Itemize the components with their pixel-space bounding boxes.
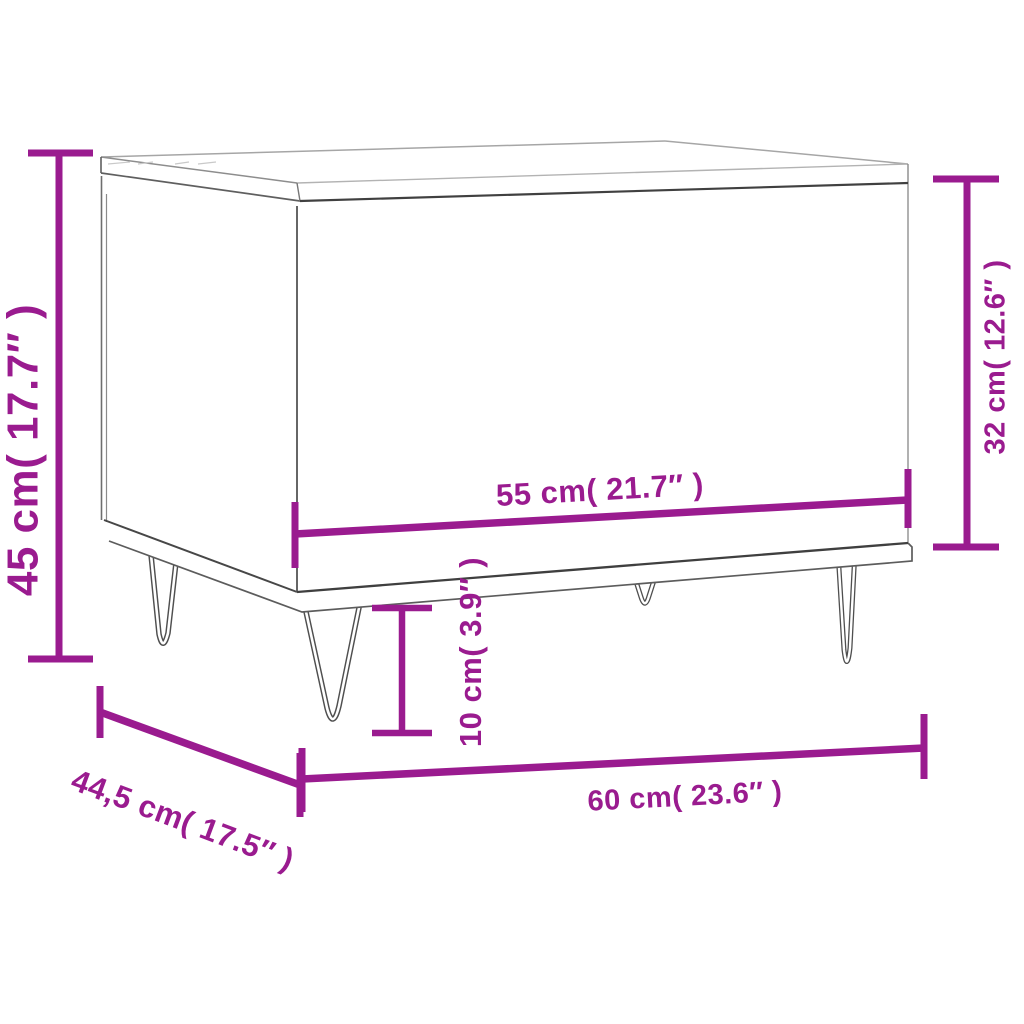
dimension-diagram-page: 45 cm( 17.7″ ) 32 cm( 12.6″ ) 55 cm( 21.… <box>0 0 1024 1024</box>
dimension-label: 32 cm( 12.6″ ) <box>980 260 1012 455</box>
dimension-label: 44,5 cm( 17.5″ ) <box>67 762 299 877</box>
cabinet-box <box>102 176 909 592</box>
hairpin-leg-front-left <box>303 598 361 719</box>
dimension-height-45cm: 45 cm( 17.7″ ) <box>0 153 93 659</box>
dimension-width-60cm: 60 cm( 23.6″ ) <box>302 714 924 818</box>
dimension-depth-44-5cm: 44,5 cm( 17.5″ ) <box>67 686 300 877</box>
dimension-label: 45 cm( 17.7″ ) <box>0 304 48 596</box>
dimension-label: 10 cm( 3.9″ ) <box>453 557 488 747</box>
dimension-side-height-32cm: 32 cm( 12.6″ ) <box>933 179 1012 547</box>
dimension-label: 60 cm( 23.6″ ) <box>587 776 783 818</box>
dimension-line <box>302 748 924 779</box>
dimension-diagram-canvas: 45 cm( 17.7″ ) 32 cm( 12.6″ ) 55 cm( 21.… <box>0 0 1024 1024</box>
dimension-line <box>100 712 300 785</box>
table-illustration <box>101 141 912 719</box>
